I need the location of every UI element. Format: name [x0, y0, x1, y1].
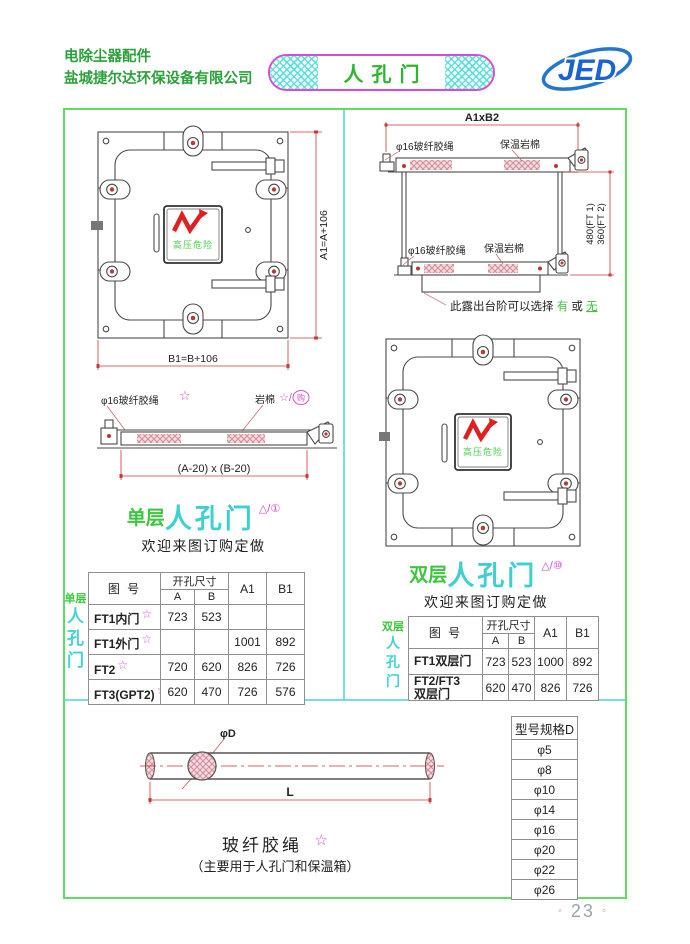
cell-a: 620: [483, 675, 509, 701]
step-note-or: 或: [571, 300, 583, 313]
cell-b: 523: [195, 605, 229, 630]
wool-label-bottom: 保温岩棉: [484, 242, 524, 255]
cell-b1: 726: [267, 655, 305, 680]
rope-title-text: 玻纤胶绳: [222, 836, 302, 855]
step-note-yes: 有: [557, 299, 569, 313]
page-number: ◦ 23 ◦: [558, 901, 608, 922]
col-header-a1: A1: [229, 573, 267, 605]
double-title-prefix: 双层: [409, 565, 447, 586]
cell-b: 470: [509, 675, 535, 701]
rope-subtitle: （主要用于人孔门和保温箱）: [130, 856, 420, 875]
cell-a: [161, 630, 195, 655]
page-title-badge: 人孔门: [268, 54, 495, 91]
rope-star-icon: ☆: [315, 832, 328, 849]
dim-height-label: A1=A+106: [318, 210, 330, 260]
row-name: FT2: [94, 663, 115, 677]
col-header-b1: B1: [567, 617, 599, 649]
row-name: FT3(GPT2): [94, 688, 155, 702]
single-door-section-drawing: φ16玻纤胶绳 ☆ 岩棉 ☆/ 购 (A-20) x (B-20): [85, 388, 345, 488]
page-number-value: 23: [571, 901, 595, 921]
warning-text: 高压危险: [173, 239, 213, 250]
company-name: 电除尘器配件 盐城捷尔达环保设备有限公司: [64, 46, 253, 91]
double-door-section-drawing: A1xB2 φ16玻纤胶绳: [372, 112, 624, 337]
rope-label-top: φ16玻纤胶绳: [396, 140, 454, 153]
warning-plate: 高压危险: [455, 414, 511, 470]
company-line2: 盐城捷尔达环保设备有限公司: [64, 68, 253, 90]
wool-mark: ☆/: [279, 392, 293, 404]
col-header-b: B: [195, 590, 229, 605]
cell-b: 523: [509, 649, 535, 675]
page-dot-left: ◦: [558, 905, 564, 917]
col-header-drawing-no: 图 号: [89, 573, 161, 605]
rope-label: φ16玻纤胶绳: [101, 394, 159, 407]
cell-b: 620: [195, 655, 229, 680]
spec-row: φ22: [512, 860, 578, 880]
spec-row: φ10: [512, 780, 578, 800]
col-header-drawing-no: 图 号: [409, 617, 483, 649]
col-header-b1: B1: [267, 573, 305, 605]
cell-b1: [267, 605, 305, 630]
cell-a1: 826: [229, 655, 267, 680]
cell-a1: 726: [229, 680, 267, 705]
warning-text: 高压危险: [463, 446, 503, 457]
rope-cross-section: [188, 752, 216, 780]
side-label-top: 单层: [63, 590, 88, 606]
single-door-table: 图 号 开孔尺寸 A1 B1 A B FT1内门☆ 723 523 FT1外门☆…: [88, 572, 305, 705]
single-table-side-label: 单层 人 孔 门: [63, 590, 88, 672]
side-char: 人: [380, 634, 406, 653]
wool-label-top: 保温岩棉: [500, 138, 540, 151]
dim-top-label: A1xB2: [465, 112, 499, 124]
spec-row: φ14: [512, 800, 578, 820]
rope-star-icon: ☆: [179, 388, 191, 403]
star-icon: ☆: [141, 632, 152, 646]
row-name-line2: 双层门: [414, 688, 482, 701]
step-note-prefix: 此露出台阶可以选择: [450, 299, 554, 313]
cell-a1: 826: [535, 675, 567, 701]
rope-length-label: L: [286, 785, 293, 799]
dim-bottom-label: (A-20) x (B-20): [178, 463, 251, 475]
double-door-table: 图 号 开孔尺寸 A1 B1 A B FT1双层门 723 523 1000 8…: [408, 616, 599, 701]
handle-upper: [504, 372, 564, 380]
logo-text: JED: [558, 54, 616, 87]
dim-side-label-2: 360(FT 2): [596, 203, 607, 245]
cell-b1: 892: [567, 649, 599, 675]
cell-a: 723: [483, 649, 509, 675]
spec-row: φ16: [512, 820, 578, 840]
cell-b1: 726: [567, 675, 599, 701]
spec-header: 型号规格D: [512, 717, 578, 740]
table-row: FT1内门☆ 723 523: [89, 605, 305, 630]
catalog-page: 电除尘器配件 盐城捷尔达环保设备有限公司 人孔门 JED: [0, 0, 690, 944]
page-title: 人孔门: [318, 56, 445, 89]
side-char: 孔: [63, 628, 88, 650]
row-name-line1: FT2/FT3: [414, 675, 482, 688]
col-header-b: B: [509, 634, 535, 649]
single-title-main: 人孔门: [165, 504, 255, 534]
company-line1: 电除尘器配件: [64, 46, 253, 68]
side-char: 人: [63, 606, 88, 628]
cell-a: 720: [161, 655, 195, 680]
handle-lower: [504, 492, 564, 500]
page-dot-right: ◦: [602, 905, 608, 917]
spec-row: φ20: [512, 840, 578, 860]
jed-logo: JED: [536, 36, 638, 100]
rope-diameter-label: φD: [220, 728, 236, 740]
slab-body: [97, 420, 337, 448]
spec-table: 型号规格D φ5 φ8 φ10 φ14 φ16 φ20 φ22 φ26: [511, 716, 578, 900]
table-row: FT1外门☆ 1001 892: [89, 630, 305, 655]
side-char: 门: [380, 672, 406, 691]
col-header-a: A: [161, 590, 195, 605]
double-table-side-label: 双层 人 孔 门: [380, 618, 406, 691]
table-row: FT1双层门 723 523 1000 892: [409, 649, 599, 675]
rope-drawing: φD L: [128, 722, 458, 812]
cell-a: 620: [161, 680, 195, 705]
double-title-mark: △/⑩: [541, 560, 562, 572]
badge-hatch-left: [270, 56, 318, 89]
handle-lower: [212, 280, 272, 288]
table-row: FT2☆ 720 620 826 726: [89, 655, 305, 680]
row-name: FT1外门: [94, 637, 139, 651]
single-title-prefix: 单层: [127, 508, 165, 529]
cell-a1: 1000: [535, 649, 567, 675]
col-header-opening: 开孔尺寸: [161, 573, 229, 590]
double-door-title: 双层人孔门△/⑩: [345, 554, 627, 593]
cell-b1: 576: [267, 680, 305, 705]
single-title-mark: △/①: [259, 503, 280, 515]
spec-row: φ5: [512, 740, 578, 760]
row-name: FT1内门: [94, 612, 139, 626]
step-note-no: 无: [586, 301, 598, 313]
cell-b1: 892: [267, 630, 305, 655]
cell-a1: 1001: [229, 630, 267, 655]
col-header-a: A: [483, 634, 509, 649]
cell-b: [195, 630, 229, 655]
single-door-subtitle: 欢迎来图订购定做: [63, 536, 344, 556]
star-icon: ☆: [117, 658, 128, 672]
wool-label: 岩棉: [255, 393, 275, 406]
dim-side-label-1: 480(FT 1): [585, 203, 596, 245]
wool-mark-char: 购: [297, 393, 305, 403]
double-door-subtitle: 欢迎来图订购定做: [345, 592, 627, 612]
side-char: 门: [63, 650, 88, 672]
step-note: 此露出台阶可以选择 有 或 无: [450, 299, 598, 313]
cell-b: 470: [195, 680, 229, 705]
spec-row: φ26: [512, 880, 578, 900]
handle-upper: [212, 162, 272, 170]
star-icon: ☆: [141, 607, 152, 621]
exposed-step: [422, 275, 540, 292]
badge-hatch-right: [445, 56, 493, 89]
rope-title: 玻纤胶绳 ☆: [150, 831, 400, 856]
spec-row: φ8: [512, 760, 578, 780]
double-title-main: 人孔门: [447, 561, 537, 591]
table-row: FT3(GPT2)☆ 620 470 726 576: [89, 680, 305, 705]
table-row: FT2/FT3 双层门 620 470 826 726: [409, 675, 599, 701]
single-door-title: 单层人孔门△/①: [63, 497, 344, 536]
row-name-line1: FT1双层门: [414, 655, 482, 668]
side-label-top: 双层: [380, 618, 406, 634]
cell-a: 723: [161, 605, 195, 630]
single-door-front-view-drawing: 高压危险 A1=A+106 B1=B+106: [88, 118, 333, 378]
section-body: [380, 148, 588, 292]
cell-a1: [229, 605, 267, 630]
dim-width-label: B1=B+106: [168, 353, 218, 365]
double-door-front-view-drawing: 高压危险: [378, 334, 588, 552]
col-header-a1: A1: [535, 617, 567, 649]
star-icon: ☆: [157, 683, 161, 697]
col-header-opening: 开孔尺寸: [483, 617, 535, 634]
side-char: 孔: [380, 653, 406, 672]
rope-label-bottom: φ16玻纤胶绳: [408, 244, 466, 257]
warning-plate: 高压危险: [164, 206, 222, 263]
